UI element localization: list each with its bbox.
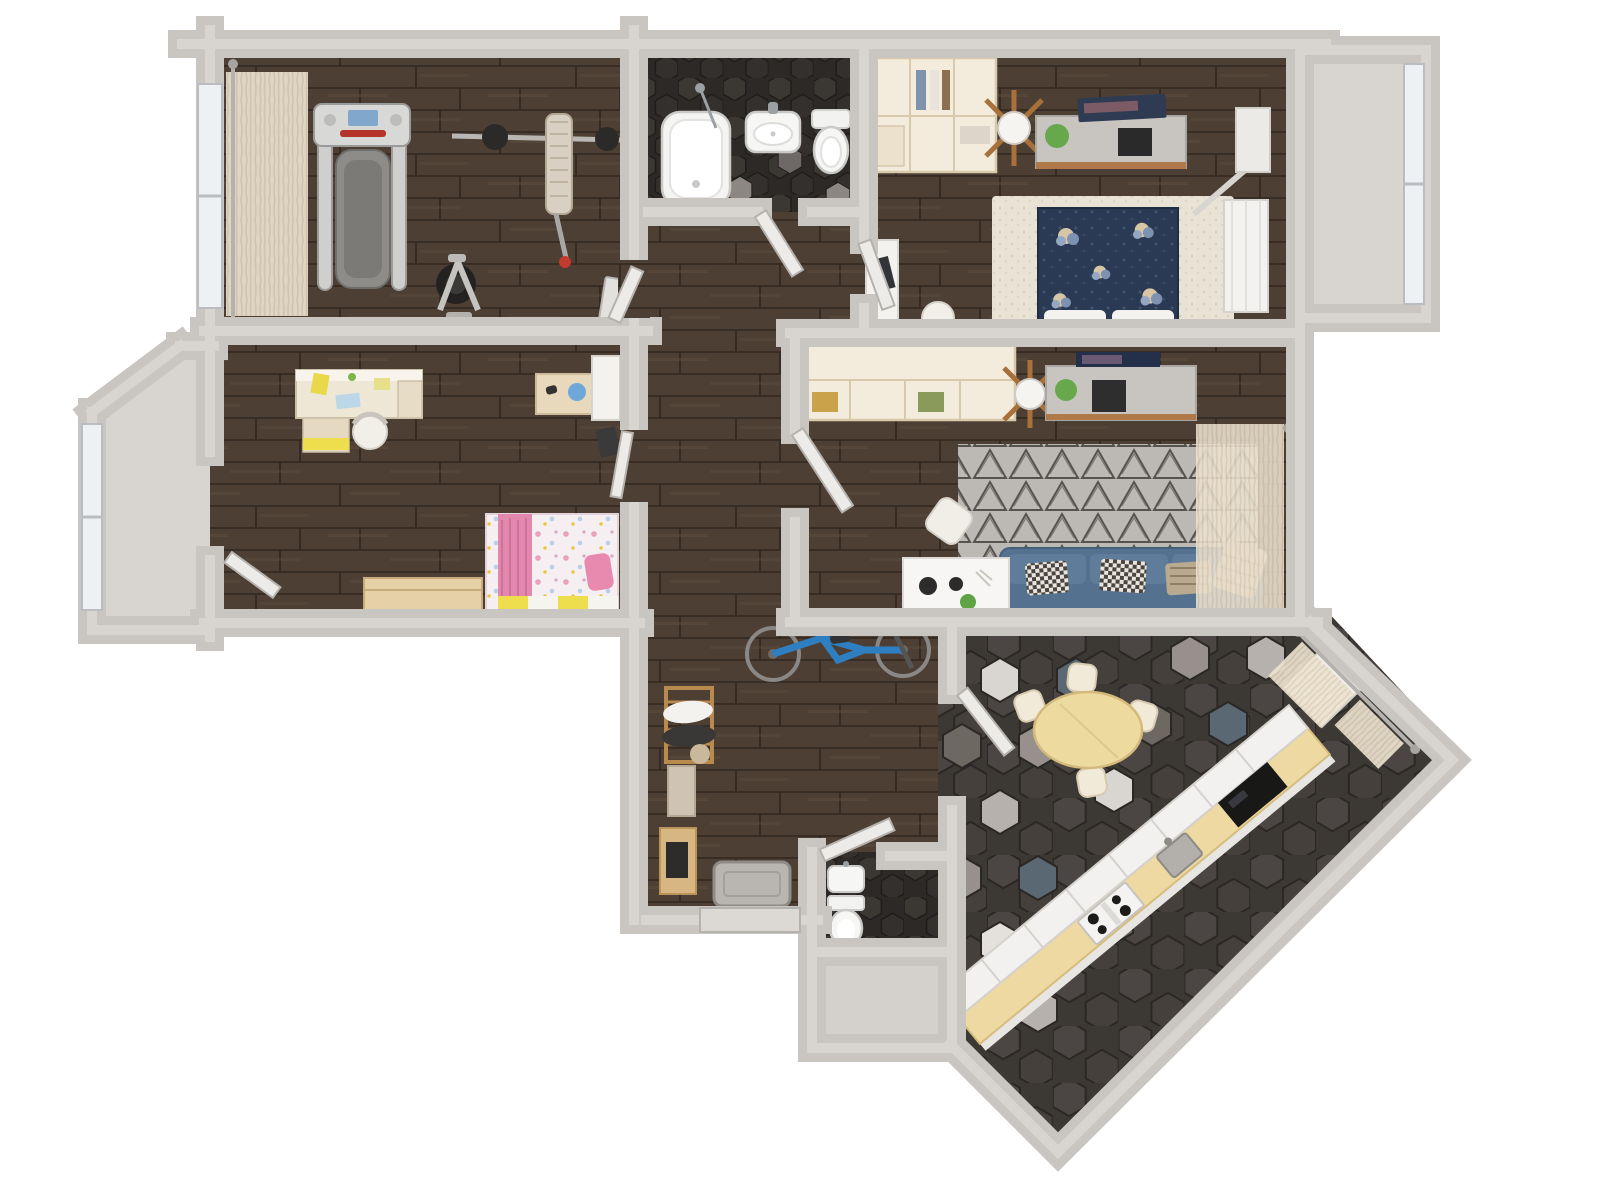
hanging-clothes-blue (916, 70, 926, 110)
kids-desk-card (374, 378, 390, 390)
coffee-desk-disc-2 (949, 577, 963, 591)
kids-bed (486, 514, 618, 616)
gym-window (198, 84, 222, 308)
gym-sheer-curtain (226, 72, 308, 316)
wardrobe-box (960, 126, 990, 144)
hanging-clothes-brown (942, 70, 950, 110)
dining-chair-4 (1076, 766, 1108, 798)
treadmill-screen (348, 110, 378, 126)
sideboard-books-1 (812, 392, 838, 412)
bedroom-radiator (1236, 108, 1270, 172)
sink-faucet (768, 102, 778, 114)
vestibule-floor (648, 212, 864, 333)
living-plant (1055, 379, 1077, 401)
balcony-left-window (82, 424, 102, 610)
bathroom-toilet (812, 110, 850, 173)
entry-door (700, 908, 800, 932)
shower-head (695, 83, 705, 93)
kids-desk-folder (310, 373, 329, 395)
dining-chair-2 (1067, 663, 1098, 694)
cabinet-wood-edge (1036, 162, 1186, 169)
globe (568, 383, 586, 401)
corridor-floor (648, 333, 790, 622)
treadmill (314, 104, 410, 290)
hall-bench-bag (666, 842, 688, 878)
sideboard-books-2 (918, 392, 944, 412)
shoe-cabinet (668, 766, 695, 816)
sofa-pillow-1 (1025, 560, 1070, 596)
living-coffee-desk (903, 558, 1009, 612)
living-monitor (1092, 380, 1126, 412)
sofa-pillow-2 (1099, 558, 1147, 593)
coffee-desk-plant (960, 594, 976, 610)
balcony-right-window (1404, 64, 1424, 304)
floor-plan-svg (0, 0, 1600, 1200)
gym-curtain-rod-finial (228, 59, 238, 69)
wc-sink-faucet (843, 861, 849, 867)
barbell-rack-knob (559, 256, 571, 268)
coffee-desk-disc-1 (919, 577, 937, 595)
bedroom-open-wardrobe (866, 58, 996, 172)
hanging-clothes-white (930, 70, 939, 110)
room-wc (828, 861, 864, 946)
coat-rack-basket (690, 744, 710, 764)
living-sideboard (795, 340, 1015, 420)
bedroom-bed (1038, 208, 1178, 328)
kids-desk-chair (353, 414, 387, 449)
bathtub-drain (692, 180, 700, 188)
kids-desk-yellow-drawer (303, 438, 349, 450)
kids-desk-paper (335, 393, 360, 409)
bedroom-plant (1045, 124, 1069, 148)
hall-bench (660, 828, 696, 894)
wc-sink (828, 866, 864, 892)
treadmill-buttons (340, 130, 386, 137)
bedroom-tv-box (1118, 128, 1152, 156)
door-mat (714, 862, 790, 906)
living-sheer-curtain (1196, 424, 1284, 610)
floor-plan-stage (0, 0, 1600, 1200)
